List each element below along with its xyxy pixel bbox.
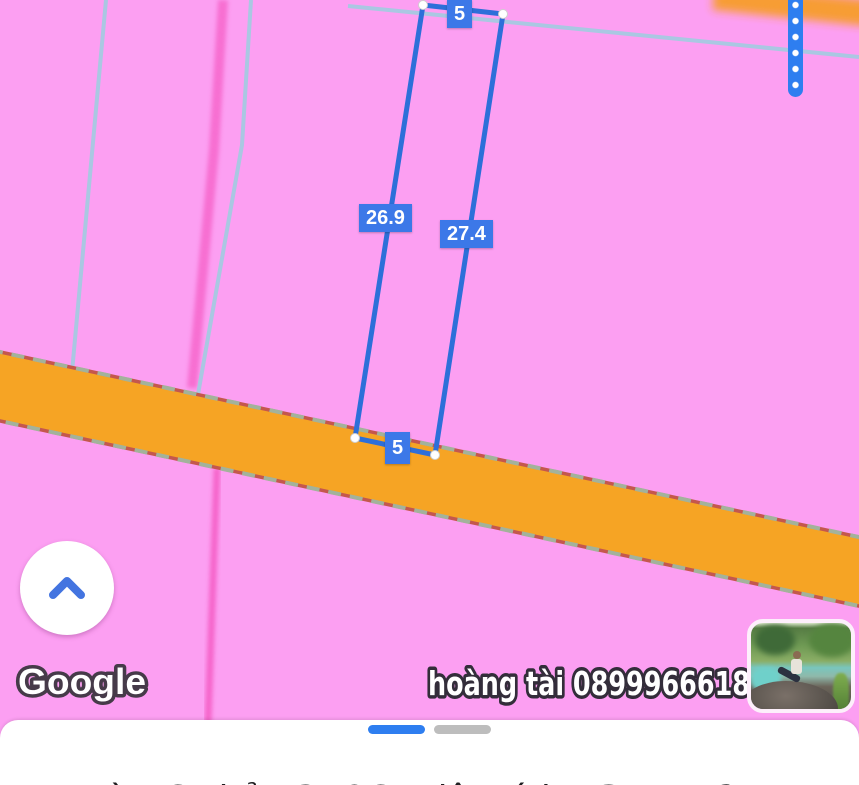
measure-label-bottom: 5	[385, 432, 410, 464]
dotted-marker-bar	[788, 0, 803, 97]
segment-pill-active	[368, 725, 425, 734]
sheet-label: Tờ	[87, 779, 139, 785]
sheet-number: 56	[139, 779, 187, 785]
segment-indicator	[0, 725, 859, 734]
photo-thumbnail[interactable]	[747, 619, 855, 713]
collapse-button[interactable]	[20, 541, 114, 635]
measure-label-right: 27.4	[440, 220, 493, 248]
road	[0, 350, 859, 609]
parcel-line-left	[72, 0, 106, 372]
measure-vertex-handle[interactable]	[351, 434, 360, 443]
area-value: 134.7m²	[573, 779, 733, 785]
parcel-info-text: Tờ 56 Thửa 2106, Diện tích 134.7m²	[24, 738, 733, 785]
plot-label: Thửa	[187, 779, 294, 785]
measure-label-top: 5	[447, 0, 472, 28]
area-label: , Diện tích	[390, 779, 573, 785]
road-fragment-top-right	[712, 0, 859, 28]
thumbnail-tree	[755, 625, 795, 655]
watermark-text: hoàng tài 0899966618	[428, 664, 750, 703]
segment-pill-inactive	[434, 725, 491, 734]
plot-number: 2106	[294, 779, 390, 785]
measure-vertex-handle[interactable]	[419, 1, 428, 10]
chevron-up-icon	[39, 571, 95, 605]
thumbnail-person	[793, 651, 801, 659]
measure-label-left: 26.9	[359, 204, 412, 232]
thumbnail-rock	[747, 681, 838, 713]
parcel-bottom-sheet[interactable]: Tờ 56 Thửa 2106, Diện tích 134.7m²	[0, 720, 859, 785]
measure-vertex-handle[interactable]	[499, 10, 508, 19]
watermark: hoàng tài 0899966618	[424, 656, 760, 710]
measure-vertex-handle[interactable]	[431, 451, 440, 460]
google-logo-text: Google	[18, 661, 146, 702]
app-screen: 5 26.9 27.4 5 Google hoàng tài 089996661…	[0, 0, 859, 785]
thumbnail-tree	[809, 623, 855, 657]
thumbnail-person	[791, 659, 802, 674]
boundary-line-magenta-lower	[208, 468, 217, 723]
google-logo: Google	[14, 654, 164, 710]
